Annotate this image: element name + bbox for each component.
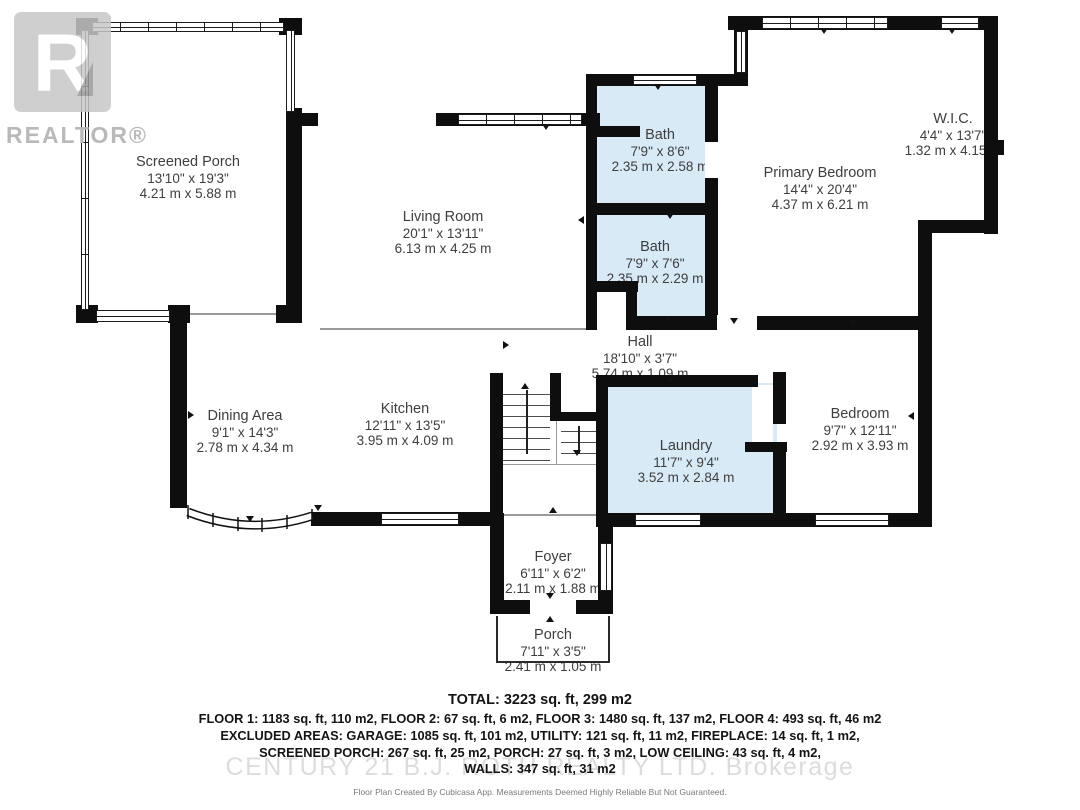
window	[941, 17, 979, 29]
floor-plan: Screened Porch 13'10" x 19'3" 4.21 m x 5…	[0, 0, 1080, 810]
stairs-up-arrow-icon	[526, 390, 528, 454]
wall-segment	[596, 375, 758, 387]
room-dims-imperial: 12'11" x 13'5"	[357, 418, 454, 434]
room-dims-metric: 4.21 m x 5.88 m	[136, 186, 240, 202]
door-marker-icon	[188, 411, 194, 419]
porch-outline-left	[496, 616, 498, 662]
room-dims-imperial: 18'10" x 3'7"	[592, 351, 689, 367]
door-marker-icon	[820, 28, 828, 34]
realtor-watermark: R REALTOR®	[14, 12, 111, 112]
stair-divider-line	[556, 421, 557, 465]
bedroom-closet-notch	[752, 385, 773, 443]
room-dims-metric: 2.78 m x 4.34 m	[197, 440, 294, 456]
room-dims-imperial: 6'11" x 6'2"	[505, 566, 601, 582]
room-dims-imperial: 14'4" x 20'4"	[764, 182, 877, 198]
wall-segment	[745, 442, 787, 452]
wall-segment	[286, 108, 302, 323]
window	[92, 22, 284, 32]
realtor-logo-leg	[77, 62, 93, 96]
summary-excluded-1: EXCLUDED AREAS: GARAGE: 1085 sq. ft, 101…	[0, 728, 1080, 745]
room-name: Primary Bedroom	[764, 166, 877, 182]
door-marker-icon	[546, 616, 554, 622]
room-label-bedroom: Bedroom 9'7" x 12'11" 2.92 m x 3.93 m	[812, 407, 909, 454]
room-dims-metric: 3.52 m x 2.84 m	[638, 470, 735, 486]
stairs-up-arrowhead-icon	[521, 383, 529, 389]
window	[635, 514, 701, 526]
wall-segment	[994, 140, 1004, 155]
porch-outline-bottom	[496, 661, 610, 663]
room-label-screened-porch: Screened Porch 13'10" x 19'3" 4.21 m x 5…	[136, 155, 240, 202]
room-label-living-room: Living Room 20'1" x 13'11" 6.13 m x 4.25…	[395, 210, 492, 257]
door-marker-icon	[666, 213, 674, 219]
wall-segment	[490, 513, 504, 614]
window	[458, 114, 582, 125]
summary-floors: FLOOR 1: 1183 sq. ft, 110 m2, FLOOR 2: 6…	[0, 711, 1080, 728]
door-marker-icon	[503, 341, 509, 349]
room-name: Hall	[592, 335, 689, 351]
room-divider-line	[320, 328, 588, 330]
room-name: Bath	[607, 240, 704, 256]
window	[96, 310, 170, 322]
room-name: Laundry	[638, 439, 735, 455]
foyer-opening-line	[504, 514, 596, 516]
realtor-logo-icon: R	[14, 12, 111, 112]
room-dims-metric: 4.37 m x 6.21 m	[764, 197, 877, 213]
window	[381, 513, 459, 525]
bath-notch	[597, 292, 626, 330]
porch-outline-right	[608, 616, 610, 662]
stairs-down-arrowhead-icon	[573, 450, 581, 456]
door-marker-icon	[546, 593, 554, 599]
room-name: Porch	[505, 628, 602, 644]
front-door	[600, 543, 612, 591]
wall-segment	[596, 375, 608, 527]
realtor-watermark-text: REALTOR®	[6, 122, 148, 149]
door-marker-icon	[654, 84, 662, 90]
room-dims-metric: 2.35 m x 2.58 m	[612, 159, 709, 175]
room-dims-imperial: 9'7" x 12'11"	[812, 423, 909, 439]
room-name: Dining Area	[197, 409, 294, 425]
stair-edge-line	[503, 464, 597, 465]
room-label-laundry: Laundry 11'7" x 9'4" 3.52 m x 2.84 m	[638, 439, 735, 486]
room-label-primary-bedroom: Primary Bedroom 14'4" x 20'4" 4.37 m x 6…	[764, 166, 877, 213]
wall-segment	[286, 113, 318, 126]
wall-segment	[490, 600, 530, 614]
room-dims-metric: 2.92 m x 3.93 m	[812, 438, 909, 454]
room-label-foyer: Foyer 6'11" x 6'2" 2.11 m x 1.88 m	[505, 550, 601, 597]
room-name: Foyer	[505, 550, 601, 566]
room-dims-imperial: 9'1" x 14'3"	[197, 425, 294, 441]
door-marker-icon	[542, 124, 550, 130]
room-name: Screened Porch	[136, 155, 240, 171]
wall-segment	[586, 126, 640, 137]
room-label-kitchen: Kitchen 12'11" x 13'5" 3.95 m x 4.09 m	[357, 402, 454, 449]
window	[736, 31, 746, 73]
door-marker-icon	[314, 505, 322, 511]
door-marker-icon	[908, 412, 914, 420]
room-dims-imperial: 11'7" x 9'4"	[638, 455, 735, 471]
wall-segment	[705, 74, 718, 330]
door-marker-icon	[549, 507, 557, 513]
window	[286, 30, 295, 112]
wall-segment	[490, 373, 503, 515]
wall-segment	[984, 16, 998, 234]
disclaimer-text: Floor Plan Created By Cubicasa App. Meas…	[0, 787, 1080, 797]
room-label-dining-area: Dining Area 9'1" x 14'3" 2.78 m x 4.34 m	[197, 409, 294, 456]
room-name: Kitchen	[357, 402, 454, 418]
room-dims-metric: 3.95 m x 4.09 m	[357, 433, 454, 449]
room-dims-imperial: 13'10" x 19'3"	[136, 171, 240, 187]
window	[815, 514, 889, 526]
wall-segment	[576, 600, 613, 614]
wall-segment	[918, 220, 932, 527]
room-name: Living Room	[395, 210, 492, 226]
wall-segment	[773, 442, 786, 527]
porch-opening-line	[190, 313, 278, 315]
summary-walls: WALLS: 347 sq. ft, 31 m2	[0, 761, 1080, 778]
room-dims-metric: 6.13 m x 4.25 m	[395, 241, 492, 257]
window	[633, 75, 697, 85]
summary-total: TOTAL: 3223 sq. ft, 299 m2	[0, 692, 1080, 708]
door-marker-icon	[667, 376, 675, 382]
door-marker-icon	[578, 216, 584, 224]
room-dims-imperial: 7'11" x 3'5"	[505, 644, 602, 660]
door-marker-icon	[664, 316, 672, 322]
realtor-logo-letter: R	[14, 14, 111, 114]
summary-excluded-2: SCREENED PORCH: 267 sq. ft, 25 m2, PORCH…	[0, 745, 1080, 762]
room-dims-imperial: 7'9" x 8'6"	[612, 144, 709, 160]
room-name: Bedroom	[812, 407, 909, 423]
room-label-bath-lower: Bath 7'9" x 7'6" 2.35 m x 2.29 m	[607, 240, 704, 287]
room-label-porch: Porch 7'11" x 3'5" 2.41 m x 1.05 m	[505, 628, 602, 675]
room-dims-imperial: 7'9" x 7'6"	[607, 256, 704, 272]
wall-segment	[586, 203, 718, 215]
door-marker-icon	[849, 320, 857, 326]
door-marker-icon	[948, 28, 956, 34]
door-marker-icon	[730, 318, 738, 324]
wall-segment	[170, 310, 187, 508]
door-marker-icon	[246, 516, 254, 522]
area-summary: TOTAL: 3223 sq. ft, 299 m2 FLOOR 1: 1183…	[0, 692, 1080, 778]
wall-segment	[773, 372, 786, 424]
door-opening	[705, 142, 718, 178]
room-dims-imperial: 20'1" x 13'11"	[395, 226, 492, 242]
